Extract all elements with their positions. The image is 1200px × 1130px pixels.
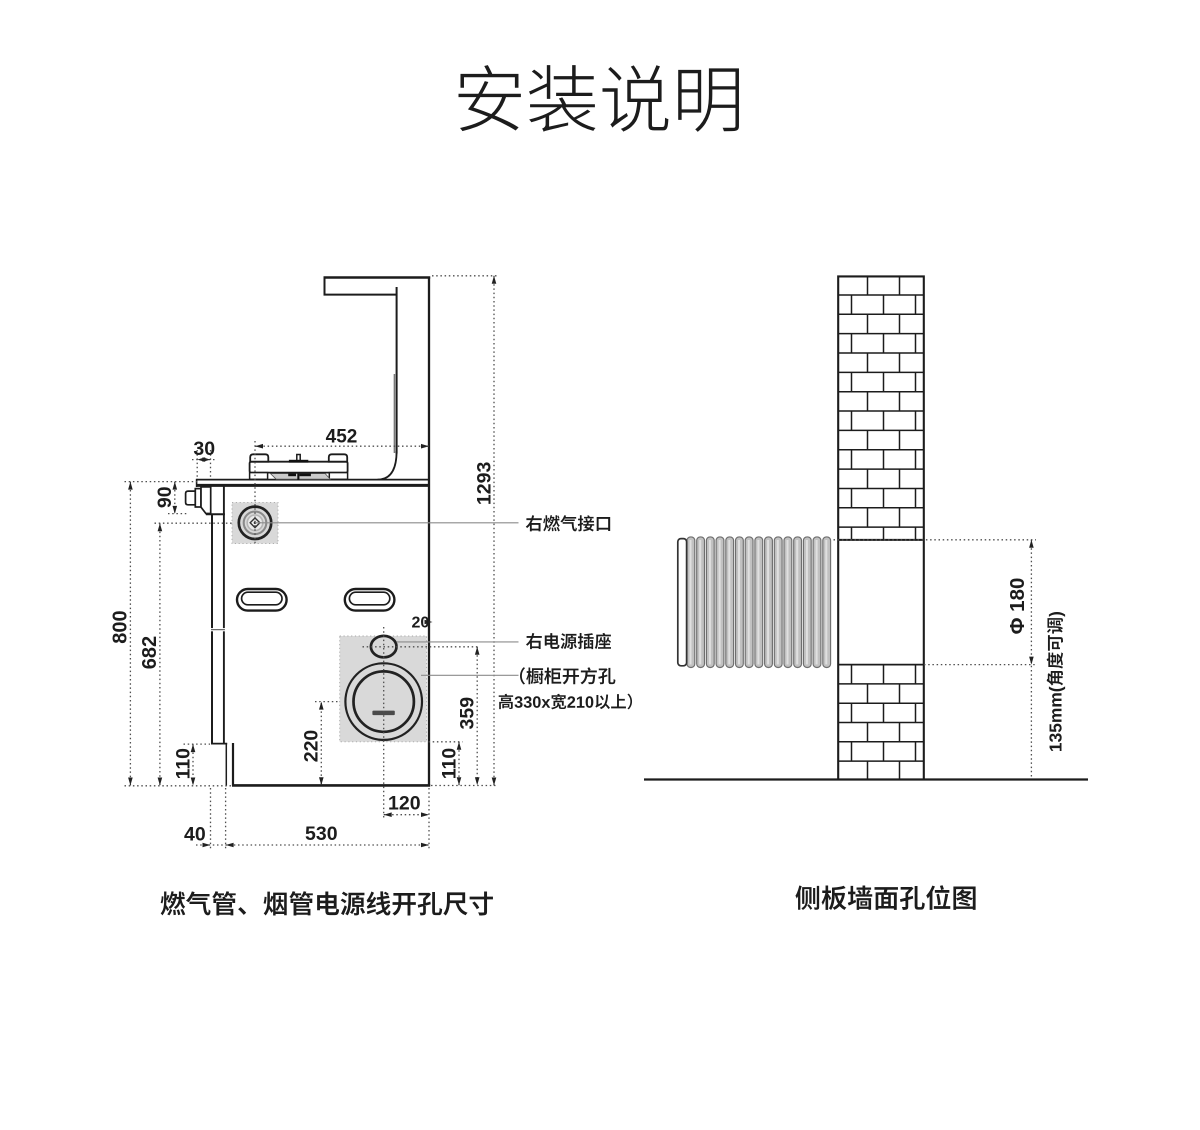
svg-text:Φ 180: Φ 180 — [1006, 578, 1029, 635]
svg-text:1293: 1293 — [473, 462, 495, 506]
svg-text:359: 359 — [457, 697, 479, 730]
svg-text:800: 800 — [110, 610, 132, 643]
svg-text:90: 90 — [154, 486, 176, 508]
svg-text:452: 452 — [326, 426, 358, 447]
svg-text:40: 40 — [184, 823, 206, 845]
svg-text:20: 20 — [412, 615, 430, 632]
svg-text:120: 120 — [388, 793, 421, 815]
svg-text:682: 682 — [139, 636, 161, 669]
svg-text:530: 530 — [305, 823, 338, 845]
svg-text:110: 110 — [172, 748, 194, 780]
svg-text:30: 30 — [193, 438, 215, 460]
svg-text:220: 220 — [301, 730, 323, 763]
svg-text:110: 110 — [438, 748, 460, 780]
